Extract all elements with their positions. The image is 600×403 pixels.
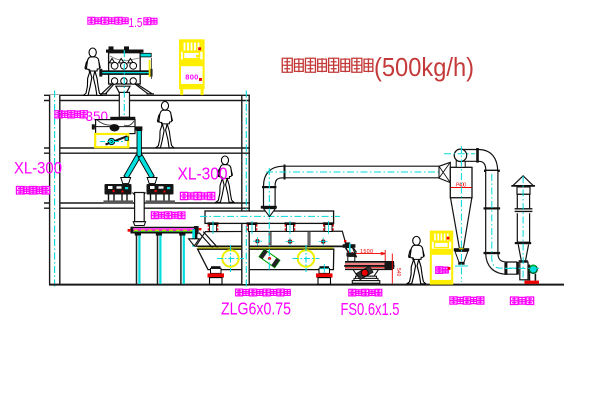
svg-text:ZLG6x0.75: ZLG6x0.75 xyxy=(221,299,291,319)
svg-text:XL-300: XL-300 xyxy=(14,160,62,178)
svg-text:800: 800 xyxy=(185,73,198,82)
svg-text:FS0.6x1.5: FS0.6x1.5 xyxy=(341,299,400,319)
svg-text:XL-300: XL-300 xyxy=(178,164,228,184)
svg-text:540: 540 xyxy=(395,268,401,277)
svg-text:1.5: 1.5 xyxy=(129,15,143,30)
svg-text:(500kg/h): (500kg/h) xyxy=(374,52,474,82)
svg-text:1500: 1500 xyxy=(360,249,373,255)
